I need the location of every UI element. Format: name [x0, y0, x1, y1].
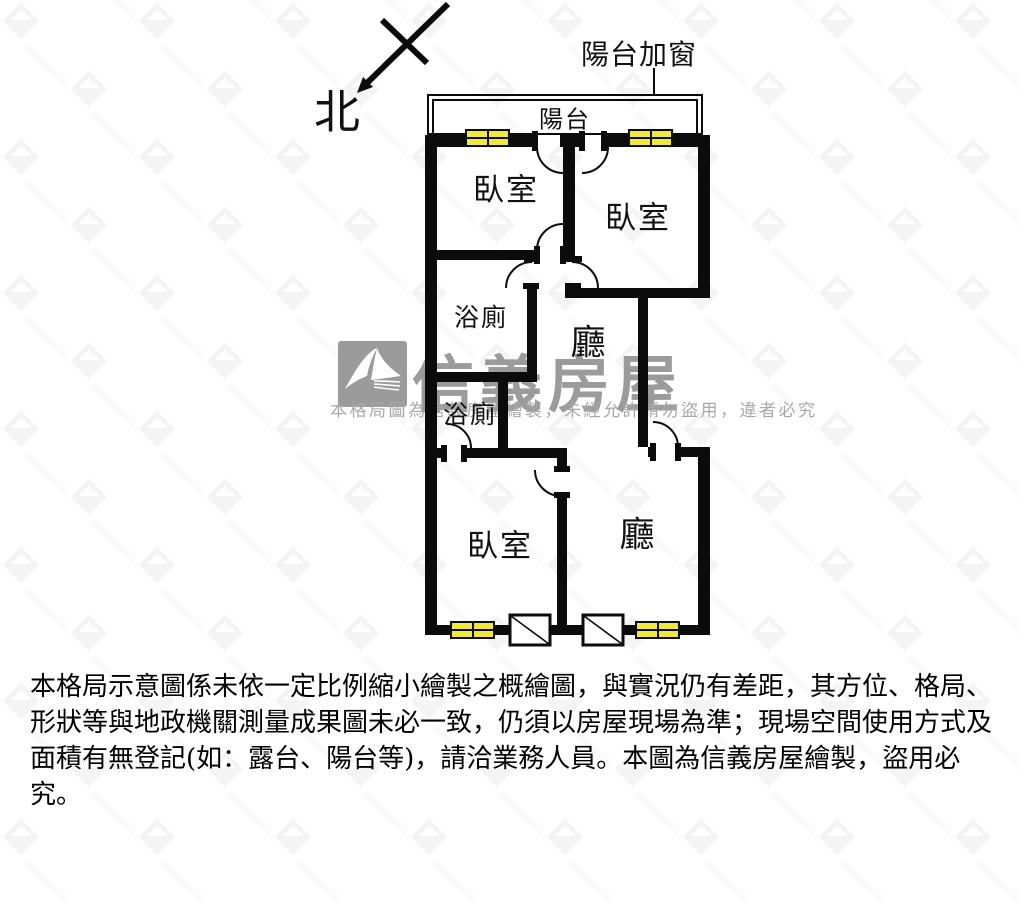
pattern-tile [207, 615, 244, 652]
pattern-tile [71, 343, 108, 380]
pattern-tile [887, 343, 924, 380]
pattern-tail [974, 859, 1022, 903]
disclaimer-text: 本格局示意圖係未依一定比例縮小繪製之概繪圖，與實況仍有差距，其方位、格局、 形狀… [30, 669, 1010, 813]
pattern-tile [887, 615, 924, 652]
pattern-tile [275, 139, 312, 176]
pattern-tile [343, 207, 380, 244]
pattern-tile [887, 207, 924, 244]
pattern-tile [955, 819, 992, 856]
pattern-tile [3, 819, 40, 856]
wall-bath-divider [425, 372, 537, 382]
pattern-tail [770, 111, 818, 155]
pattern-tile [955, 411, 992, 448]
pattern-tail [0, 383, 1, 427]
pattern-tile [479, 207, 516, 244]
pattern-tail [974, 587, 1022, 631]
pattern-tail [226, 111, 274, 155]
jamb [524, 256, 540, 262]
pattern-tail [158, 587, 206, 631]
pattern-tile [955, 139, 992, 176]
pattern-tail [906, 383, 954, 427]
window-top-left [465, 129, 510, 147]
pattern-tail [634, 247, 682, 291]
pattern-tail [22, 587, 70, 631]
pattern-tile [819, 3, 856, 40]
pattern-tile [3, 547, 40, 584]
wall-bedroom-divider [563, 135, 575, 262]
pattern-tail [226, 0, 274, 19]
pattern-tail [906, 0, 954, 19]
wall-lower-horiz-b [461, 448, 567, 458]
window-top-right [628, 129, 673, 147]
pattern-tail [634, 0, 682, 19]
pattern-tile [751, 479, 788, 516]
pattern-tile [343, 343, 380, 380]
pattern-tail [158, 859, 206, 903]
disclaimer-line-2: 形狀等與地政機關測量成果圖未必一致，仍須以房屋現場為準；現場空間使用方式及 [30, 705, 1010, 741]
jamb [554, 466, 570, 472]
pattern-tail [294, 179, 342, 223]
pattern-tail [158, 315, 206, 359]
pattern-tail [906, 519, 954, 563]
pattern-tail [90, 383, 138, 427]
pattern-tile [547, 411, 584, 448]
label-bathroom-2: 浴廁 [443, 395, 497, 431]
door-arc-balcony-left [537, 147, 563, 173]
pattern-tile [819, 819, 856, 856]
jamb [565, 283, 581, 289]
pattern-tail [838, 587, 886, 631]
pattern-tile [411, 819, 448, 856]
jamb [601, 131, 607, 151]
label-bedroom-1: 臥室 [473, 165, 539, 210]
pattern-tail [906, 111, 954, 155]
pattern-tail [90, 111, 138, 155]
jamb [441, 445, 447, 462]
pattern-tail [702, 859, 750, 903]
pattern-tile [343, 615, 380, 652]
pattern-tail [158, 451, 206, 495]
north-arrow-icon [357, 4, 448, 93]
pattern-tail [0, 0, 1, 19]
pattern-tail [702, 315, 750, 359]
pattern-tile [887, 479, 924, 516]
pattern-tile [411, 3, 448, 40]
pattern-tail [702, 43, 750, 87]
pattern-tile [547, 819, 584, 856]
pattern-tile [139, 139, 176, 176]
pattern-tail [430, 859, 478, 903]
pattern-tile [819, 547, 856, 584]
pattern-tail [430, 43, 478, 87]
north-label: 北 [314, 76, 360, 142]
pattern-tail [22, 451, 70, 495]
pattern-tile [139, 275, 176, 312]
pattern-tile [71, 615, 108, 652]
pattern-tail [158, 179, 206, 223]
jamb [675, 443, 681, 461]
pattern-tile [955, 3, 992, 40]
wall-notch-bottom [676, 447, 710, 457]
pattern-tile [479, 479, 516, 516]
wall-bed1-bottom [425, 250, 534, 260]
pattern-tile [71, 479, 108, 516]
pattern-tile [275, 275, 312, 312]
pattern-tail [0, 519, 1, 563]
pattern-tile [71, 207, 108, 244]
pattern-tail [226, 519, 274, 563]
pattern-tile [751, 71, 788, 108]
pattern-tile [71, 71, 108, 108]
pattern-tail [362, 519, 410, 563]
disclaimer-line-1: 本格局示意圖係未依一定比例縮小繪製之概繪圖，與實況仍有差距，其方位、格局、 [30, 669, 1010, 705]
pattern-tile [207, 71, 244, 108]
pattern-tail [838, 179, 886, 223]
pattern-tile [3, 139, 40, 176]
wall-bed3-right [557, 492, 567, 635]
label-balcony: 陽台 [539, 100, 591, 135]
pattern-tile [751, 615, 788, 652]
label-hall-upper: 廳 [570, 315, 607, 366]
wall-top-a [425, 135, 465, 147]
pattern-tail [90, 519, 138, 563]
label-hall-lower: 廳 [619, 507, 656, 558]
pattern-tile [751, 343, 788, 380]
pattern-tile [887, 71, 924, 108]
pattern-tail [22, 315, 70, 359]
pattern-tile [343, 479, 380, 516]
jamb [523, 283, 539, 289]
watermark-notice-text: 本格局圖為信義房屋繪製，未經允許請勿盜用，違者必究 [330, 396, 818, 421]
pattern-tile [547, 3, 584, 40]
jamb [532, 131, 538, 151]
pattern-tail [0, 655, 1, 699]
pattern-tile [139, 411, 176, 448]
pattern-tile [139, 3, 176, 40]
pattern-tail [770, 0, 818, 19]
wall-right-upper [698, 135, 710, 298]
label-bathroom-1: 浴廁 [454, 298, 508, 334]
pattern-tile [139, 819, 176, 856]
jamb [554, 492, 570, 498]
wall-left [425, 135, 437, 635]
pattern-tail [294, 859, 342, 903]
pattern-tile [955, 275, 992, 312]
pattern-tail [22, 43, 70, 87]
balcony-window-note: 陽台加窗 [581, 33, 697, 73]
pattern-tail [362, 111, 410, 155]
pattern-tile [3, 275, 40, 312]
pattern-tail [22, 859, 70, 903]
pattern-tile [207, 479, 244, 516]
pattern-tail [226, 383, 274, 427]
label-bedroom-2: 臥室 [605, 193, 671, 238]
pattern-tail [906, 247, 954, 291]
pattern-tile [819, 411, 856, 448]
pattern-tail [90, 247, 138, 291]
pattern-tail [226, 247, 274, 291]
pattern-tail [0, 111, 1, 155]
pattern-tail [362, 247, 410, 291]
pattern-tail [362, 383, 410, 427]
pattern-tail [838, 43, 886, 87]
pattern-tail [498, 0, 546, 19]
wall-bed2-bottom [565, 288, 710, 298]
pattern-tail [294, 451, 342, 495]
pattern-tail [158, 43, 206, 87]
pattern-tail [566, 451, 614, 495]
jamb [650, 443, 656, 461]
pattern-tile [139, 547, 176, 584]
wall-bath2-right [498, 382, 508, 458]
wall-bath1-right [527, 288, 537, 382]
pattern-tail [974, 179, 1022, 223]
wall-lower-horiz-a [425, 448, 441, 458]
pattern-tile [3, 411, 40, 448]
pattern-tail [770, 383, 818, 427]
pattern-tail [294, 315, 342, 359]
wall-right-lower [698, 447, 710, 635]
pattern-tile [207, 343, 244, 380]
label-bedroom-3: 臥室 [467, 521, 533, 566]
pattern-tail [294, 587, 342, 631]
pattern-tile [683, 819, 720, 856]
pattern-tail [22, 179, 70, 223]
pattern-tail [0, 247, 1, 291]
pattern-tile [955, 547, 992, 584]
pattern-tail [770, 247, 818, 291]
disclaimer-line-3: 面積有無登記(如：露台、陽台等)，請洽業務人員。本圖為信義房屋繪製，盜用必究。 [30, 741, 1010, 813]
pattern-tile [683, 411, 720, 448]
pattern-tail [838, 315, 886, 359]
wall-hall-right [638, 298, 648, 447]
pattern-tail [566, 859, 614, 903]
pattern-tile [819, 275, 856, 312]
pattern-tail [0, 791, 1, 835]
jamb [566, 256, 582, 262]
pattern-tile [207, 207, 244, 244]
pattern-tail [90, 0, 138, 19]
pattern-tile [819, 139, 856, 176]
pattern-tile [275, 547, 312, 584]
wall-top-c [604, 135, 628, 147]
window-bottom-left [450, 621, 495, 639]
pattern-tail [362, 0, 410, 19]
pattern-tail [974, 451, 1022, 495]
pattern-tile [275, 819, 312, 856]
pattern-tile [751, 207, 788, 244]
pattern-tail [974, 43, 1022, 87]
pattern-tile [275, 411, 312, 448]
pattern-tail [838, 451, 886, 495]
pattern-tail [770, 519, 818, 563]
jamb [461, 445, 467, 462]
pattern-tail [838, 859, 886, 903]
sinyi-logo-icon [338, 341, 407, 407]
pattern-tail [974, 315, 1022, 359]
pattern-tile [275, 3, 312, 40]
window-bottom-right [635, 621, 680, 639]
pattern-tile [3, 3, 40, 40]
